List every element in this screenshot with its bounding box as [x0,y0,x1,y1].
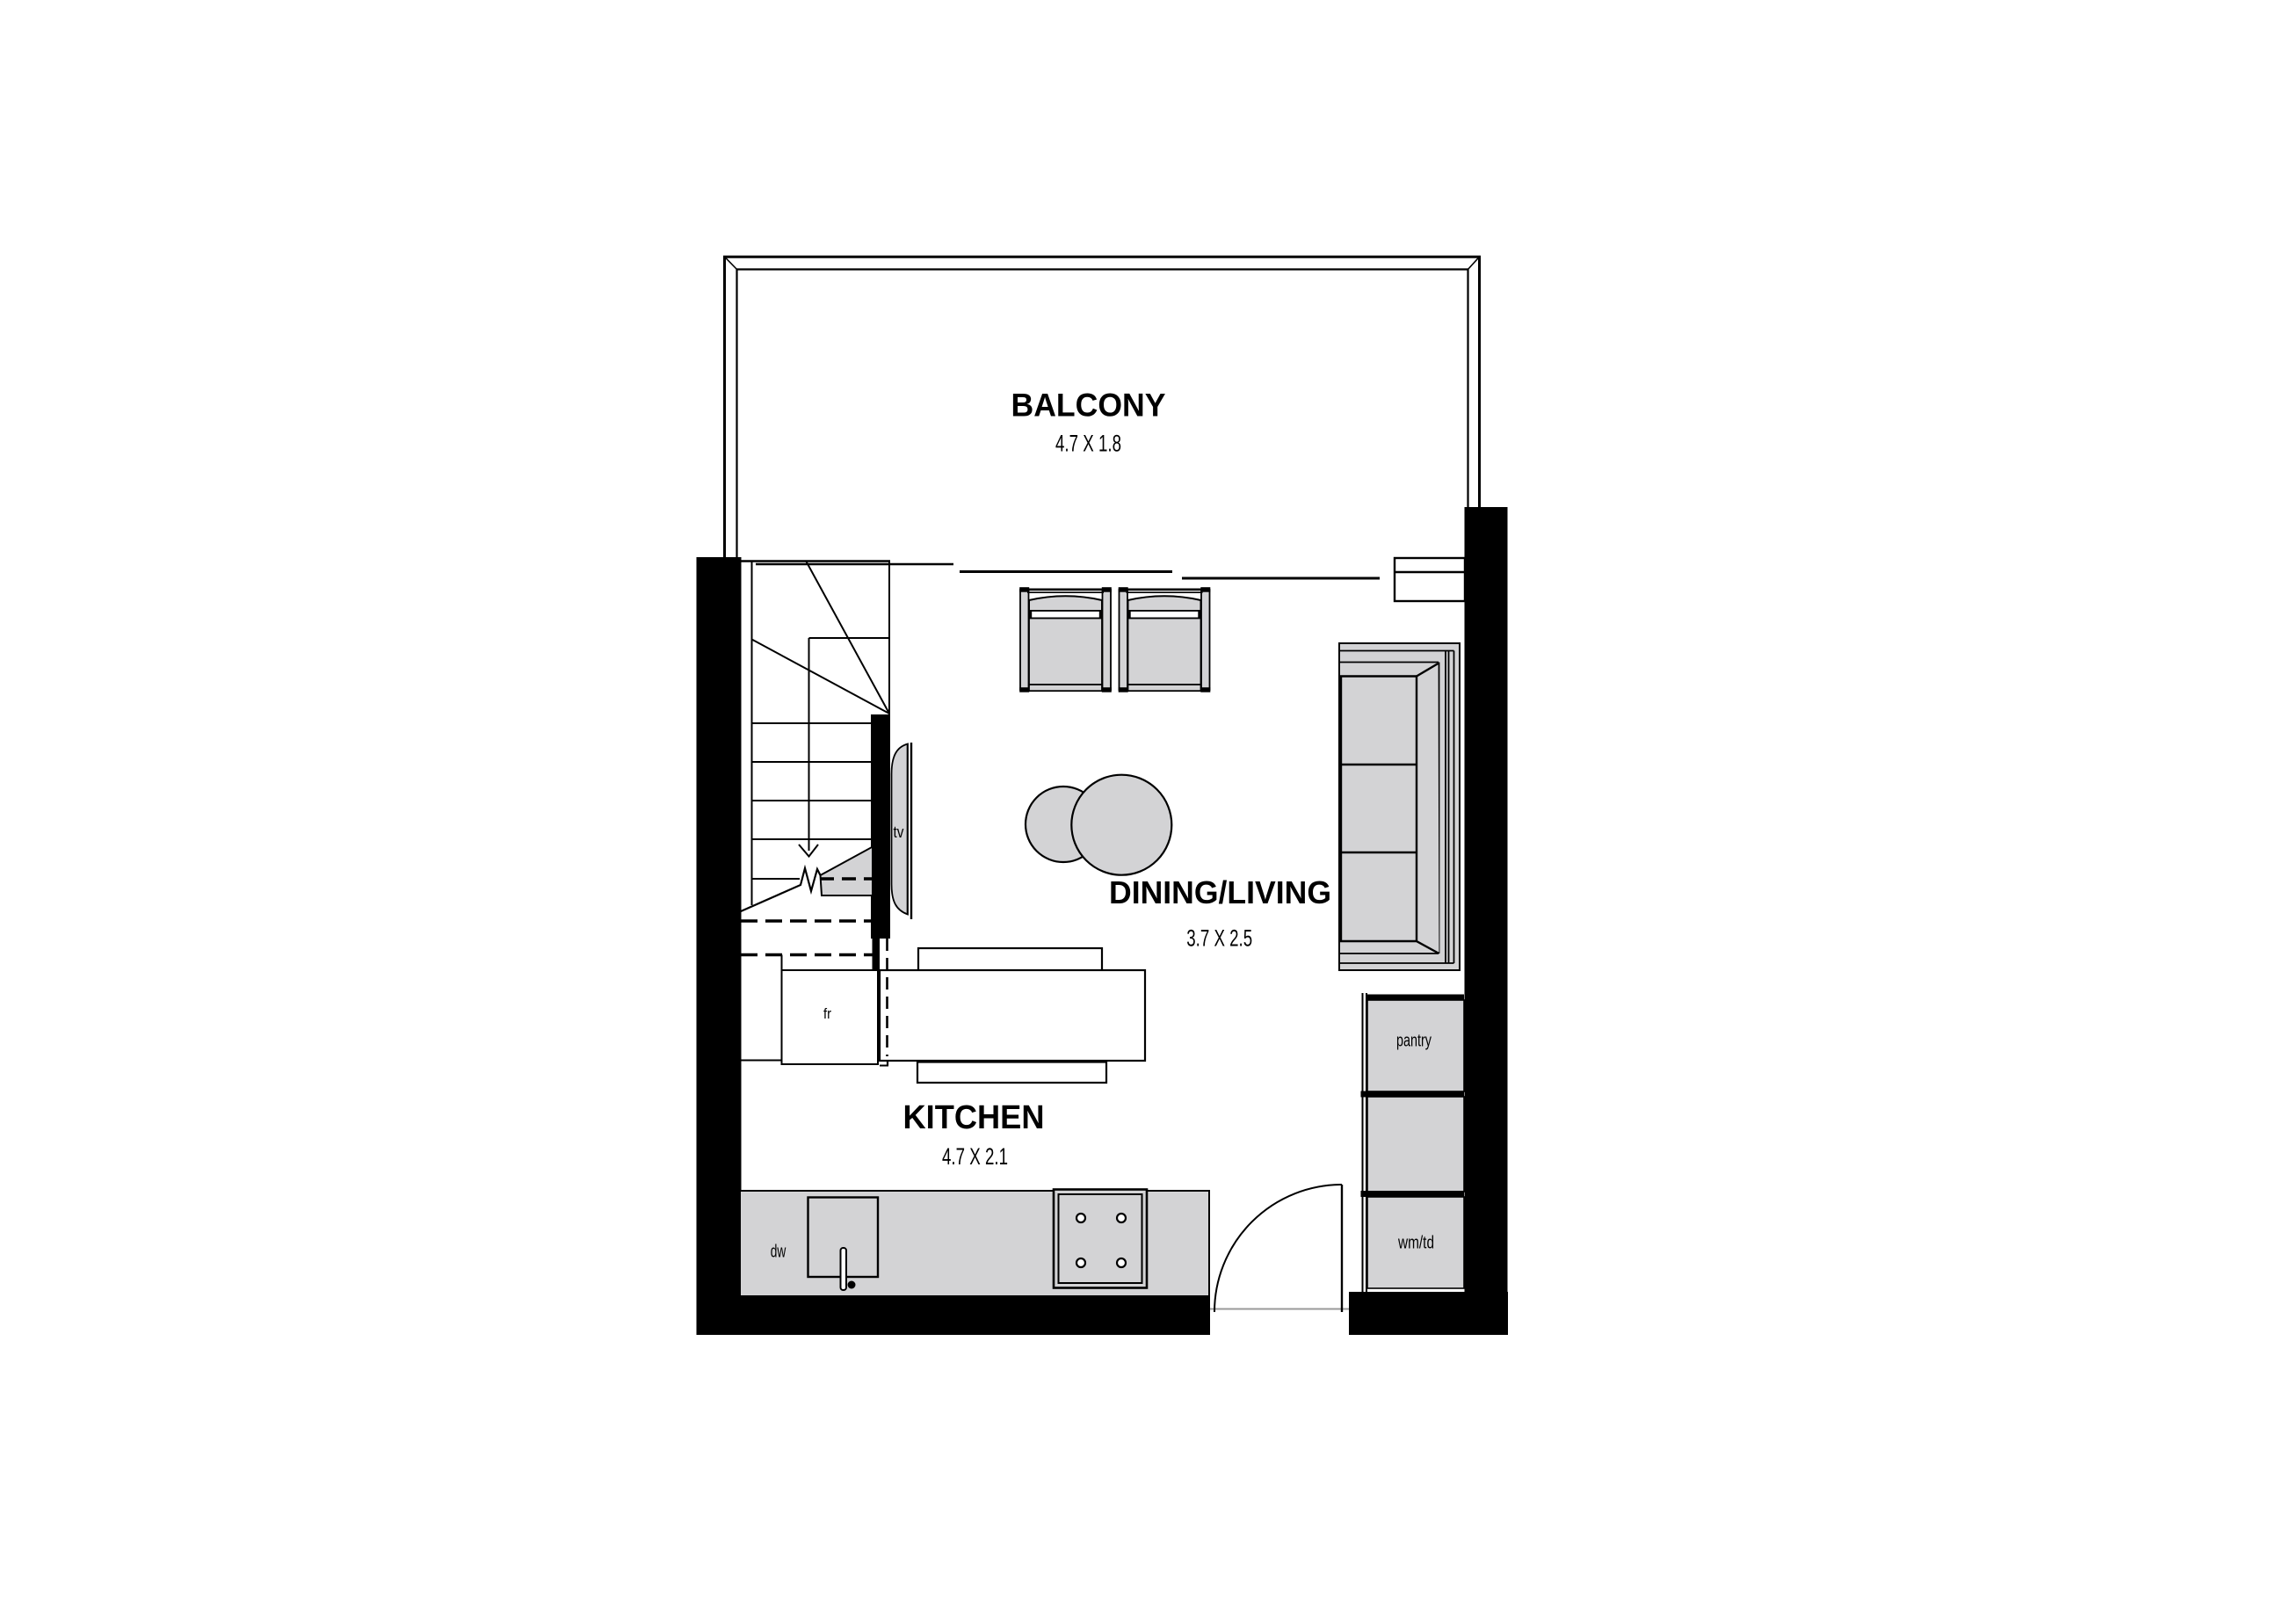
svg-text:wm/td: wm/td [1397,1234,1434,1253]
svg-text:pantry: pantry [1396,1032,1432,1051]
svg-text:BALCONY: BALCONY [1011,388,1166,424]
svg-text:tv: tv [894,823,904,841]
svg-text:DINING/LIVING: DINING/LIVING [1109,874,1331,910]
svg-text:fr: fr [823,1005,831,1022]
svg-text:KITCHEN: KITCHEN [903,1099,1045,1136]
svg-text:dw: dw [771,1242,786,1262]
svg-text:4.7 X 2.1: 4.7 X 2.1 [942,1143,1008,1170]
svg-text:4.7 X 1.8: 4.7 X 1.8 [1055,431,1121,457]
svg-text:3.7 X 2.5: 3.7 X 2.5 [1186,925,1252,952]
